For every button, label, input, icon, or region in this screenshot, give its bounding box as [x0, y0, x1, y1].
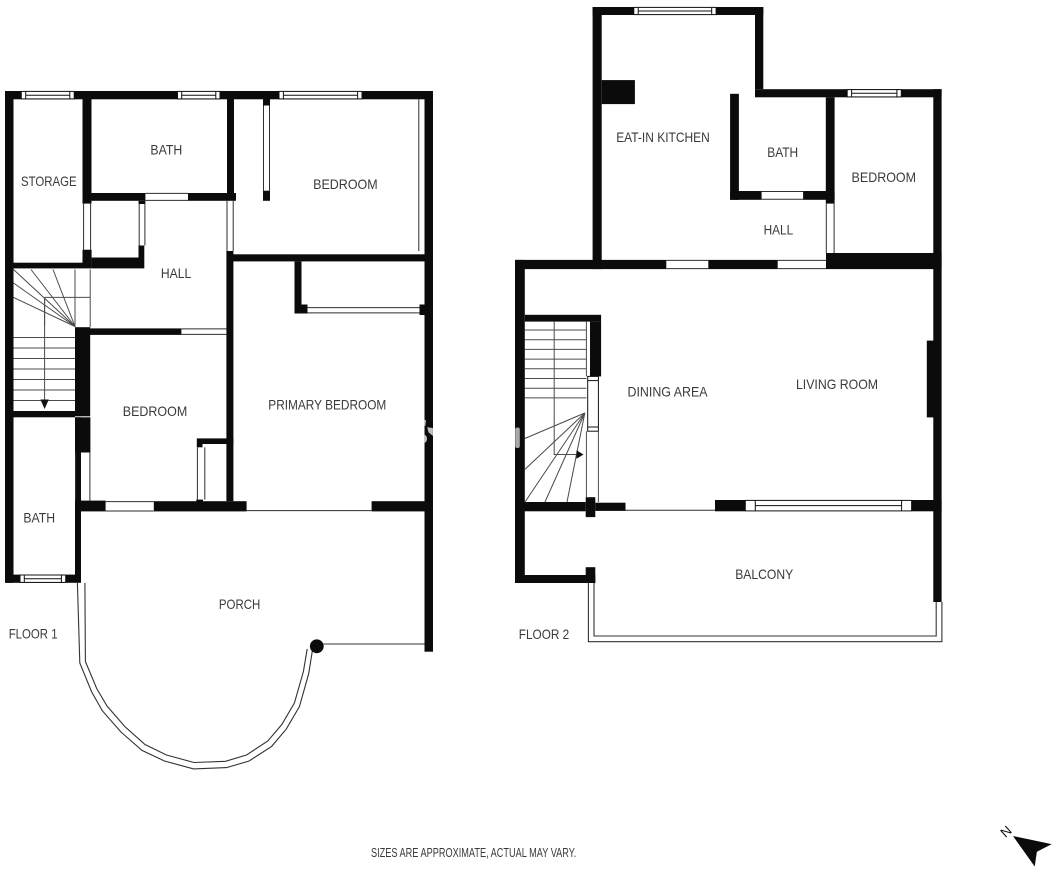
svg-text:SIZES ARE APPROXIMATE, ACTUAL: SIZES ARE APPROXIMATE, ACTUAL MAY VARY. [371, 845, 576, 860]
svg-text:PRIMARY BEDROOM: PRIMARY BEDROOM [268, 398, 386, 413]
svg-text:BATH: BATH [23, 510, 55, 525]
svg-text:BEDROOM: BEDROOM [313, 177, 378, 192]
svg-text:BALCONY: BALCONY [735, 567, 793, 582]
svg-text:BEDROOM: BEDROOM [852, 170, 917, 185]
svg-text:HALL: HALL [161, 266, 192, 281]
svg-text:FLOOR 2: FLOOR 2 [519, 627, 569, 642]
svg-text:BATH: BATH [150, 143, 182, 158]
svg-text:DINING AREA: DINING AREA [628, 385, 709, 400]
svg-text:BATH: BATH [767, 145, 798, 160]
svg-text:STORAGE: STORAGE [21, 174, 77, 189]
svg-text:LIVING ROOM: LIVING ROOM [796, 377, 878, 392]
svg-text:HALL: HALL [764, 222, 794, 237]
svg-text:FLOOR 1: FLOOR 1 [9, 627, 58, 642]
svg-text:BEDROOM: BEDROOM [123, 404, 188, 419]
svg-text:PORCH: PORCH [219, 597, 260, 612]
svg-text:EAT-IN KITCHEN: EAT-IN KITCHEN [616, 130, 710, 145]
